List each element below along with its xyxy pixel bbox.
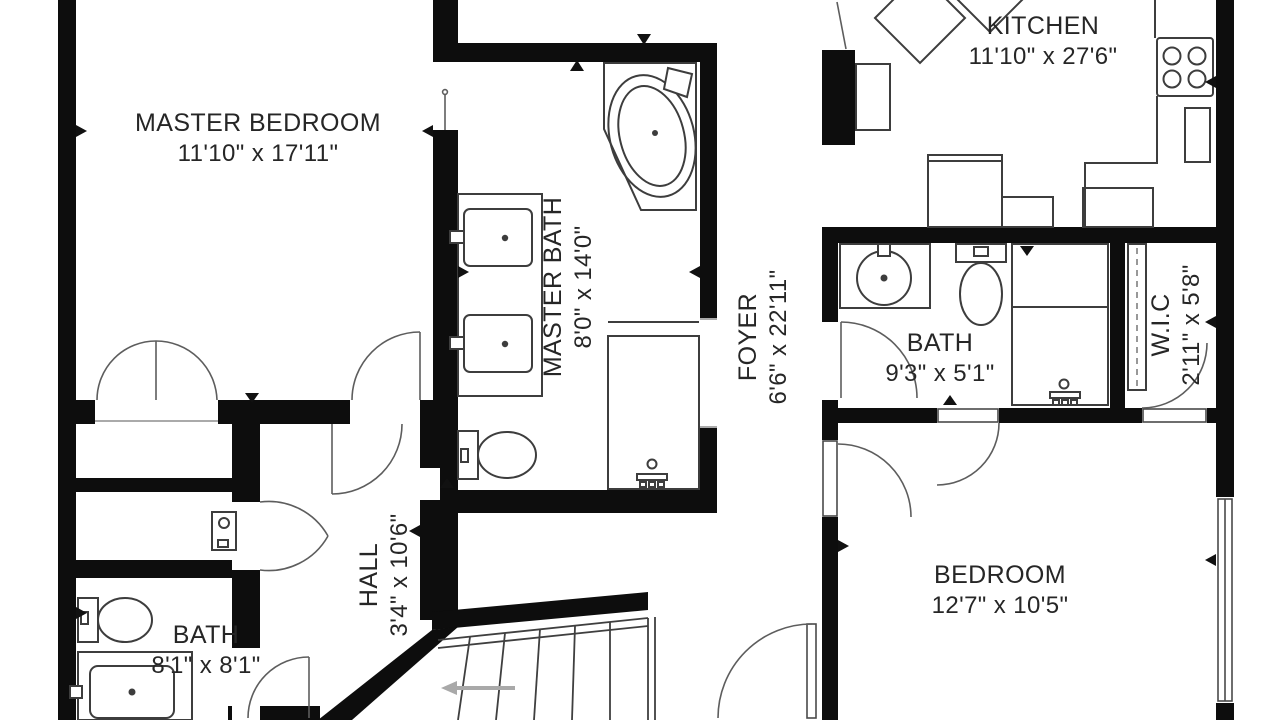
room-name: FOYER — [733, 269, 764, 404]
bath2-toilet-icon — [78, 598, 152, 642]
room-dims: 3'4" x 10'6" — [385, 513, 414, 636]
master-toilet-icon — [458, 431, 536, 479]
room-dims: 9'3" x 5'1" — [885, 359, 994, 388]
room-label-foyer: FOYER 6'6" x 22'11" — [733, 269, 793, 404]
room-label-kitchen: KITCHEN 11'10" x 27'6" — [969, 11, 1118, 71]
room-label-wic: W.I.C 2'11" x 5'8" — [1146, 264, 1206, 385]
room-label-master-bedroom: MASTER BEDROOM 11'10" x 17'11" — [135, 108, 381, 168]
room-name: KITCHEN — [969, 11, 1118, 42]
bedroom-window — [1216, 497, 1234, 703]
room-dims: 11'10" x 27'6" — [969, 42, 1118, 71]
kitchen-stove-icon — [1157, 38, 1213, 96]
room-dims: 12'7" x 10'5" — [932, 591, 1069, 620]
room-label-hall: HALL 3'4" x 10'6" — [354, 513, 414, 636]
room-name: W.I.C — [1146, 264, 1177, 385]
room-dims: 8'0" x 14'0" — [569, 197, 598, 377]
bath-shower-icon — [1012, 244, 1108, 405]
wic-closet-rod-icon — [1128, 244, 1146, 390]
room-dims: 11'10" x 17'11" — [135, 139, 381, 168]
laundry-valve-icon — [212, 512, 236, 550]
floor-plan: MASTER BEDROOM 11'10" x 17'11" MASTER BA… — [0, 0, 1280, 720]
room-name: MASTER BATH — [538, 197, 569, 377]
room-dims: 2'11" x 5'8" — [1177, 264, 1206, 385]
room-label-bath-2: BATH 8'1" x 8'1" — [151, 620, 260, 680]
stairs — [438, 617, 655, 720]
room-name: BATH — [885, 328, 994, 359]
room-name: HALL — [354, 513, 385, 636]
stairs-direction-arrow — [441, 681, 515, 695]
room-label-bath: BATH 9'3" x 5'1" — [885, 328, 994, 388]
bath-toilet-icon — [956, 244, 1006, 325]
room-label-master-bath: MASTER BATH 8'0" x 14'0" — [538, 197, 598, 377]
room-dims: 8'1" x 8'1" — [151, 651, 260, 680]
master-shower-icon — [608, 322, 699, 489]
bath-sink-icon — [840, 244, 930, 308]
wall-openings — [95, 318, 1207, 720]
room-name: BATH — [151, 620, 260, 651]
corner-tub-icon — [595, 63, 708, 210]
double-vanity-icon — [450, 194, 542, 396]
room-dims: 6'6" x 22'11" — [764, 269, 793, 404]
room-label-bedroom: BEDROOM 12'7" x 10'5" — [932, 560, 1069, 620]
room-name: MASTER BEDROOM — [135, 108, 381, 139]
room-name: BEDROOM — [932, 560, 1069, 591]
